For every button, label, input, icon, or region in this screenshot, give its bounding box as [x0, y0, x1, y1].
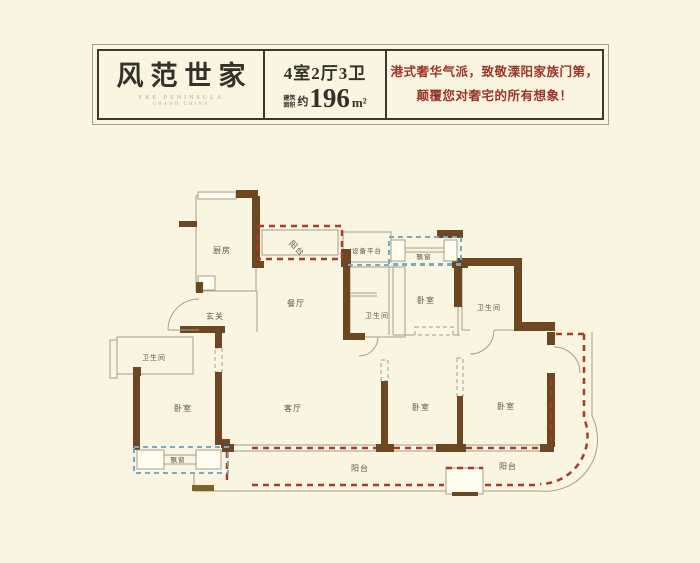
label-kitchen: 厨房 — [213, 245, 231, 255]
label-bedroom-right: 卧室 — [497, 401, 515, 411]
label-bathroom-right: 卫生间 — [477, 303, 501, 312]
label-entry: 玄关 — [206, 311, 224, 321]
label-bay-window-top: 飘窗 — [417, 252, 432, 261]
label-living: 客厅 — [284, 403, 302, 413]
door-openings — [215, 327, 463, 396]
label-bedroom-top: 卧室 — [417, 295, 435, 305]
floorplan-drawing: 厨房 阳台 设备平台 飘窗 卧室 卫生间 卫生间 餐厅 玄关 卫生间 卧室 客厅… — [0, 0, 700, 563]
bay-window-details — [137, 240, 457, 469]
label-bay-window-bottom: 飘窗 — [171, 455, 186, 464]
label-bedroom-mid: 卧室 — [412, 402, 430, 412]
label-bedroom-left: 卧室 — [174, 403, 192, 413]
label-equipment-platform: 设备平台 — [352, 246, 382, 255]
bay-windows-blue — [134, 237, 462, 473]
label-bathroom-mid: 卫生间 — [365, 311, 389, 320]
label-bathroom-left: 卫生间 — [142, 353, 166, 362]
label-balcony-right: 阳台 — [499, 461, 517, 471]
label-dining: 餐厅 — [287, 299, 305, 308]
label-balcony-bottom: 阳台 — [351, 463, 369, 473]
floorplan-page: 风范世家 YKE PENINSULA GRAND CHINA 4室2厅3卫 建筑… — [0, 0, 700, 563]
balcony-outlines-red — [227, 226, 588, 485]
